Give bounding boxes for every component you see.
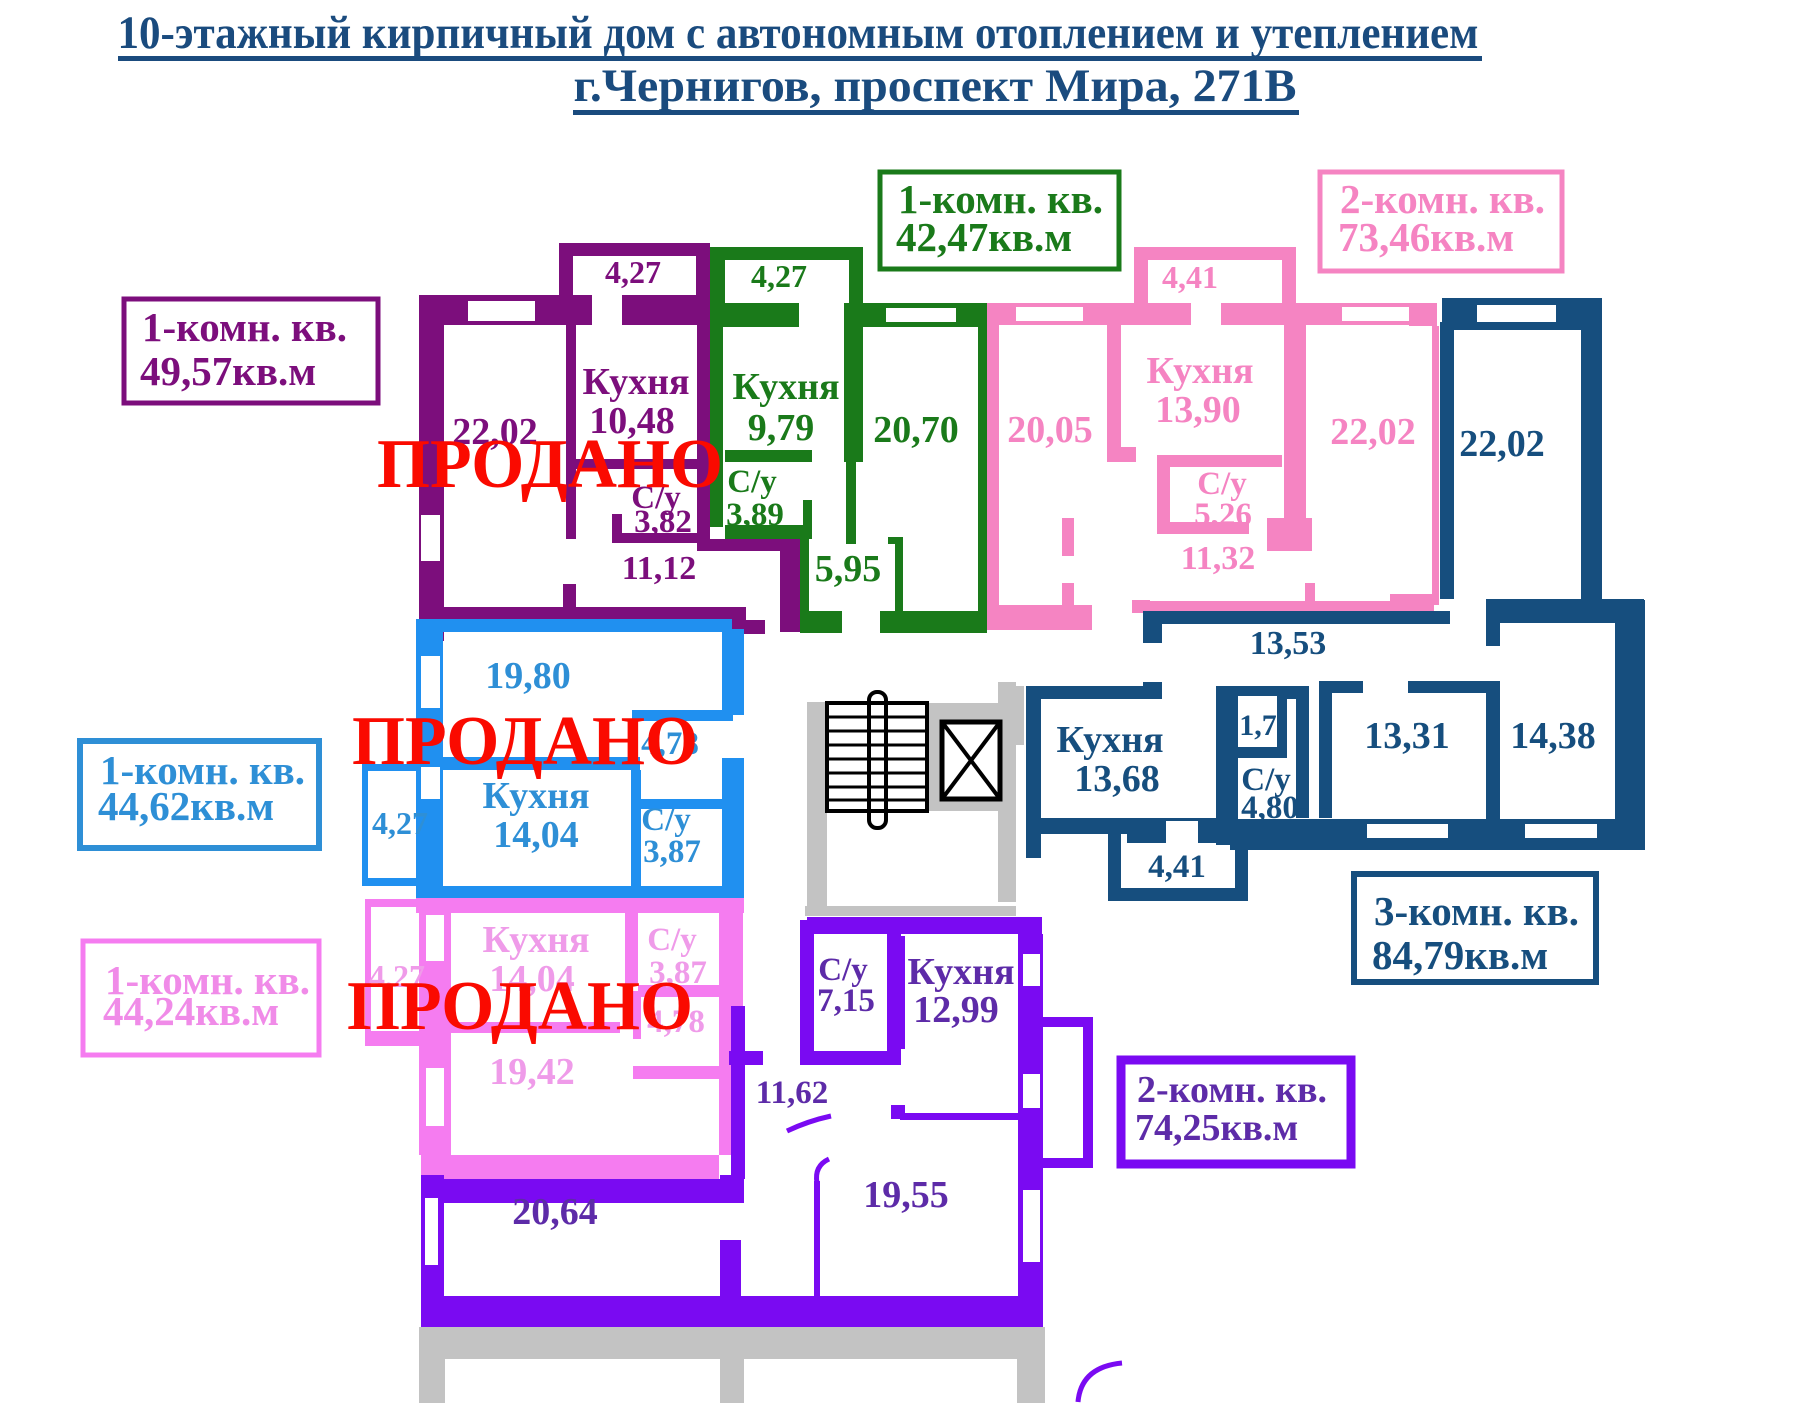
svg-text:ПРОДАНО: ПРОДАНО [352,703,698,780]
svg-text:4,27: 4,27 [751,258,807,294]
svg-text:5,26: 5,26 [1194,497,1252,533]
svg-text:14,04: 14,04 [493,814,579,856]
svg-text:3,87: 3,87 [643,834,701,870]
svg-text:19,42: 19,42 [489,1051,575,1093]
svg-text:Кухня: Кухня [1146,350,1253,392]
svg-text:ПРОДАНО: ПРОДАНО [347,968,693,1045]
svg-text:9,79: 9,79 [748,407,815,449]
svg-text:20,64: 20,64 [512,1191,598,1233]
svg-text:С/у: С/у [641,802,691,838]
svg-text:49,57кв.м: 49,57кв.м [140,348,316,394]
svg-text:11,62: 11,62 [756,1075,828,1111]
svg-text:Кухня: Кухня [482,919,589,961]
svg-text:3,82: 3,82 [634,504,692,540]
svg-text:13,68: 13,68 [1074,758,1160,800]
svg-text:11,32: 11,32 [1181,540,1256,577]
svg-text:1-комн. кв.: 1-комн. кв. [142,304,347,350]
svg-text:С/у: С/у [727,464,777,500]
svg-text:4,27: 4,27 [605,254,661,290]
svg-text:4,41: 4,41 [1148,849,1206,885]
svg-text:5,95: 5,95 [815,548,882,590]
svg-text:19,55: 19,55 [863,1174,949,1216]
svg-text:14,38: 14,38 [1510,715,1596,757]
svg-text:20,70: 20,70 [873,409,959,451]
svg-text:12,99: 12,99 [913,989,999,1031]
svg-text:Кухня: Кухня [907,951,1014,993]
svg-text:4,41: 4,41 [1162,259,1218,295]
svg-text:3,89: 3,89 [726,497,784,533]
svg-text:2-комн. кв.: 2-комн. кв. [1137,1069,1327,1111]
svg-text:11,12: 11,12 [622,550,697,587]
svg-text:Кухня: Кухня [1056,719,1163,761]
svg-text:20,05: 20,05 [1007,409,1093,451]
svg-text:С/у: С/у [647,922,697,958]
svg-text:22,02: 22,02 [1330,411,1416,453]
svg-text:13,53: 13,53 [1250,625,1327,662]
svg-text:4,27: 4,27 [372,805,428,841]
svg-text:13,90: 13,90 [1155,389,1241,431]
svg-text:74,25кв.м: 74,25кв.м [1135,1107,1298,1149]
svg-text:3-комн. кв.: 3-комн. кв. [1374,888,1579,934]
svg-text:Кухня: Кухня [732,366,839,408]
svg-text:44,24кв.м: 44,24кв.м [103,988,279,1034]
svg-text:73,46кв.м: 73,46кв.м [1338,214,1514,260]
svg-text:Кухня: Кухня [582,361,689,403]
svg-text:Кухня: Кухня [482,775,589,817]
svg-text:84,79кв.м: 84,79кв.м [1372,932,1548,978]
svg-text:7,15: 7,15 [817,983,875,1019]
svg-text:10-этажный кирпичный дом с авт: 10-этажный кирпичный дом с автономным от… [118,7,1479,59]
svg-text:1,7: 1,7 [1239,709,1277,742]
svg-text:44,62кв.м: 44,62кв.м [98,783,274,829]
svg-text:13,31: 13,31 [1364,715,1450,757]
svg-text:22,02: 22,02 [1459,423,1545,465]
svg-text:19,80: 19,80 [485,655,571,697]
svg-text:ПРОДАНО: ПРОДАНО [377,426,723,503]
svg-text:42,47кв.м: 42,47кв.м [896,214,1072,260]
svg-text:г.Чернигов, проспект Мира, 271: г.Чернигов, проспект Мира, 271В [574,60,1297,112]
